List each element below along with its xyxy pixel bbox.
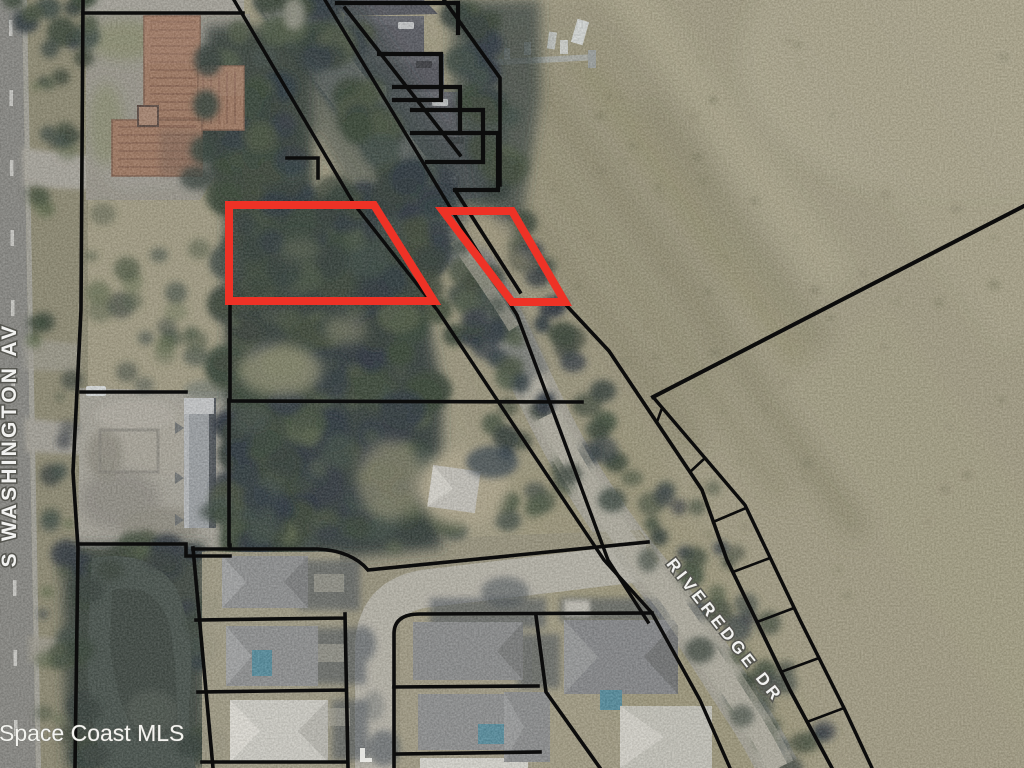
svg-text:S WASHINGTON AV: S WASHINGTON AV — [0, 323, 21, 568]
svg-text:Space Coast MLS: Space Coast MLS — [0, 720, 184, 746]
